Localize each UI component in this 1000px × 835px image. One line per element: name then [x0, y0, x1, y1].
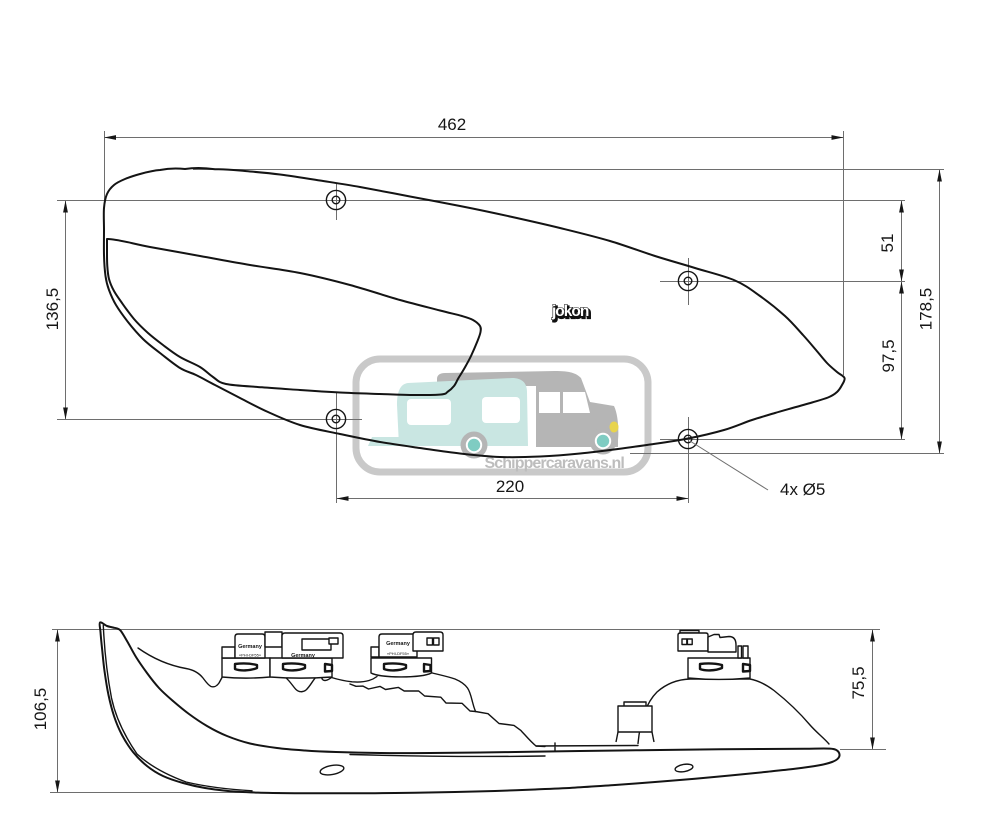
svg-text:178,5: 178,5 [917, 288, 936, 331]
svg-text:4x Ø5: 4x Ø5 [780, 480, 825, 499]
svg-text:jokon: jokon [551, 303, 589, 320]
svg-text:462: 462 [438, 115, 466, 134]
svg-text:220: 220 [496, 477, 524, 496]
svg-text:Germany: Germany [238, 644, 263, 650]
svg-text:136,5: 136,5 [43, 288, 62, 331]
svg-text:51: 51 [878, 234, 897, 253]
svg-text:106,5: 106,5 [31, 688, 50, 731]
svg-text:«PHI-DF55»: «PHI-DF55» [239, 653, 262, 658]
svg-text:75,5: 75,5 [849, 666, 868, 699]
svg-text:Germany: Germany [291, 653, 316, 659]
svg-text:97,5: 97,5 [879, 339, 898, 372]
svg-text:«PHI-DF55»: «PHI-DF55» [387, 651, 410, 656]
svg-text:Germany: Germany [386, 641, 411, 647]
